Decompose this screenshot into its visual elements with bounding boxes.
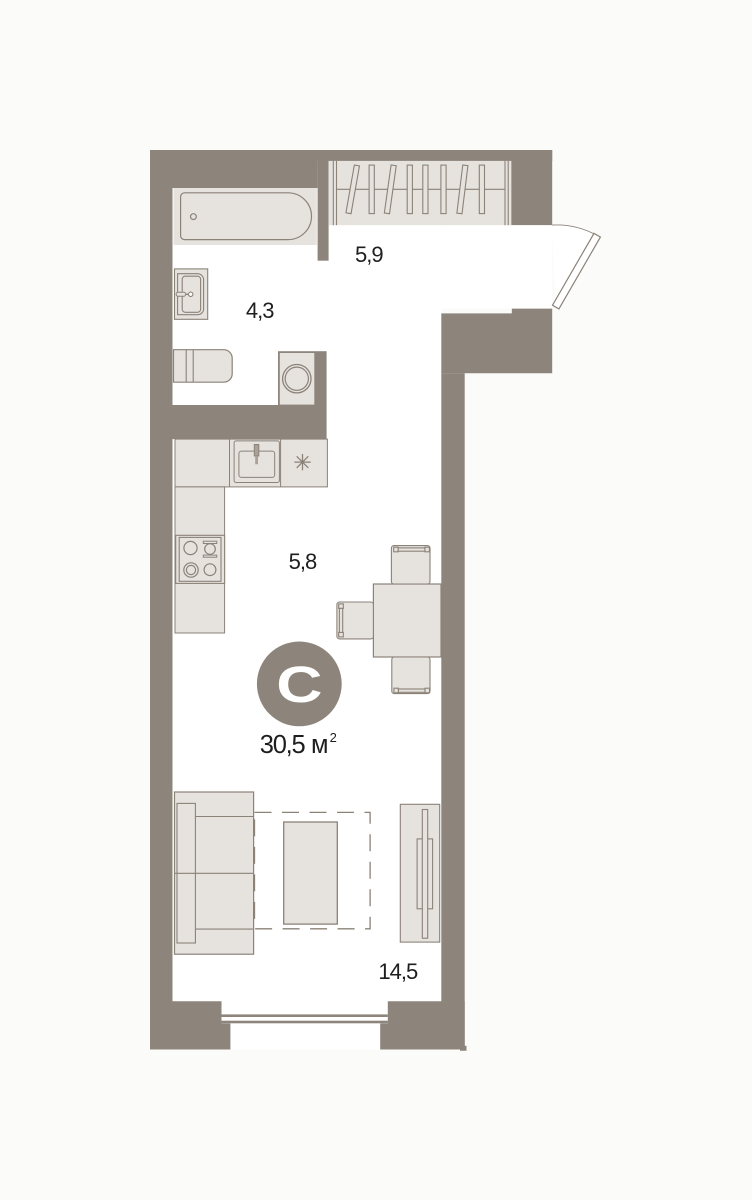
svg-text:С: С [276, 657, 322, 713]
svg-text:5,9: 5,9 [355, 242, 383, 267]
svg-text:5,8: 5,8 [289, 549, 317, 574]
svg-text:30,5 м2: 30,5 м2 [260, 730, 337, 759]
svg-text:4,3: 4,3 [246, 298, 274, 323]
svg-text:14,5: 14,5 [378, 959, 418, 984]
